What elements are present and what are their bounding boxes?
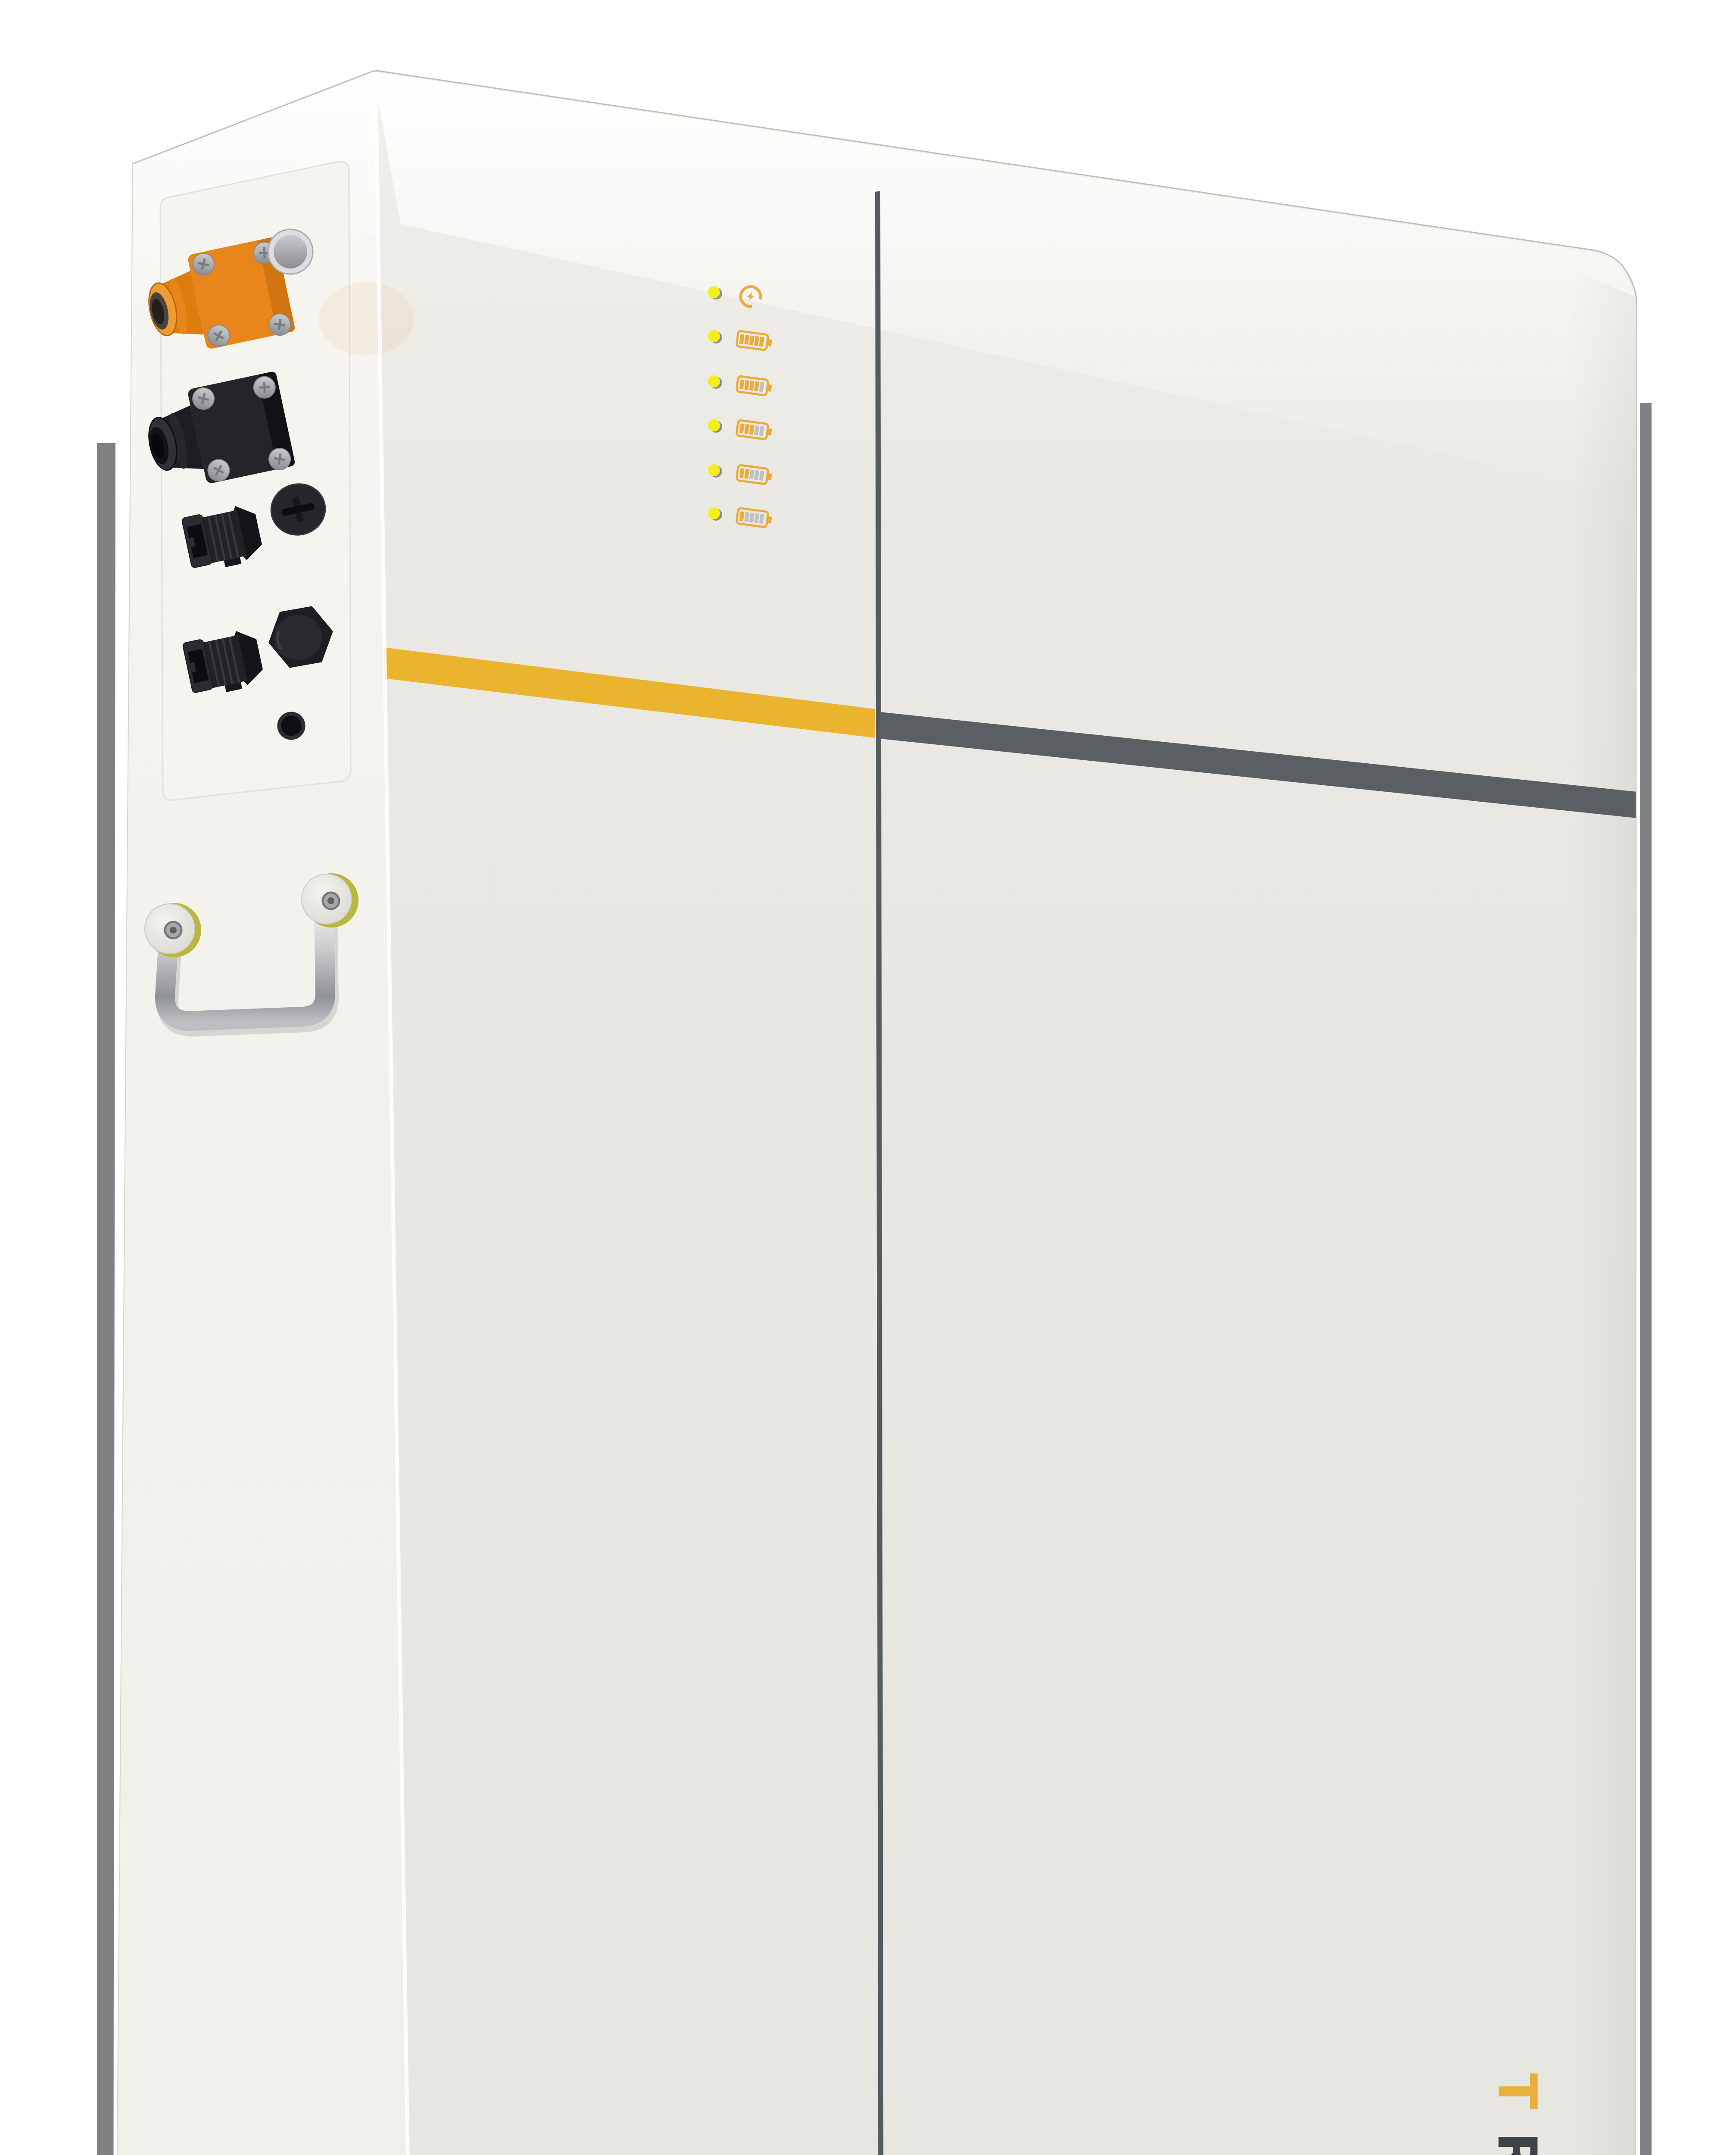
brand-word-rest: RIPLE [1486, 2132, 1548, 2155]
led [708, 330, 720, 342]
wall-bracket-right [1640, 403, 1652, 2155]
vent-hole [279, 714, 303, 738]
led [708, 464, 720, 476]
led [708, 419, 720, 431]
round-metal-button [268, 229, 313, 274]
led [708, 507, 720, 519]
product-render: TRIPLE POWER [0, 0, 1736, 2155]
right-edge-shading [1568, 267, 1636, 2155]
brand-word-accent: T [1486, 2073, 1548, 2132]
led [708, 375, 720, 387]
svg-text:TRIPLE: TRIPLE [1486, 2073, 1548, 2155]
connector-reflection [319, 282, 414, 356]
battery-unit: TRIPLE POWER [113, 71, 1636, 2155]
wall-bracket-left [97, 443, 115, 2155]
led [708, 286, 720, 298]
